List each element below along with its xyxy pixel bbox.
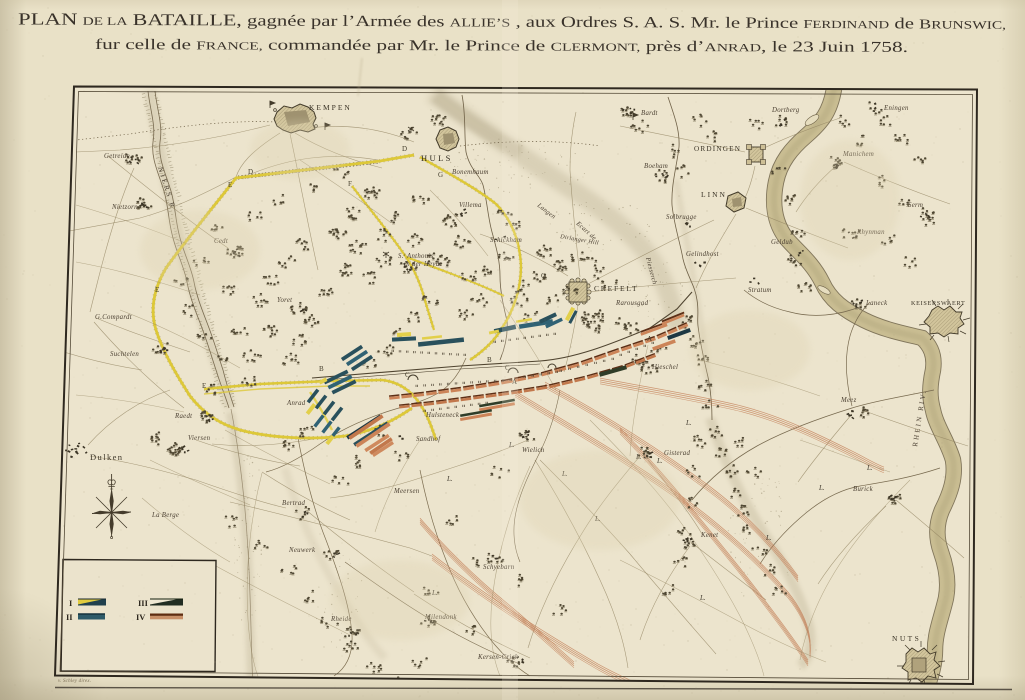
svg-text:KEISERSWAERT: KEISERSWAERT <box>911 300 965 307</box>
svg-text:D: D <box>248 168 253 176</box>
svg-text:L.: L. <box>446 475 453 483</box>
svg-text:Anrad: Anrad <box>286 400 306 407</box>
svg-text:S.ᵗ Anthonis: S.ᵗ Anthonis <box>398 253 434 260</box>
svg-text:E: E <box>228 181 232 189</box>
svg-text:E: E <box>155 286 159 294</box>
svg-text:Getreide: Getreide <box>104 153 130 160</box>
svg-text:Dortberg: Dortberg <box>771 107 800 114</box>
svg-text:Serm: Serm <box>908 202 923 209</box>
svg-text:Rarousgad: Rarousgad <box>615 300 649 307</box>
svg-text:G.Compardt: G.Compardt <box>95 314 133 321</box>
svg-text:Nietzorn: Nietzorn <box>111 204 138 211</box>
svg-text:D: D <box>402 145 407 153</box>
svg-text:L.: L. <box>685 419 692 427</box>
svg-text:Neuwerk: Neuwerk <box>288 547 316 554</box>
svg-text:B: B <box>319 365 324 373</box>
svg-text:LINN: LINN <box>701 190 727 199</box>
svg-text:E: E <box>202 382 206 390</box>
svg-text:Hieschel: Hieschel <box>651 364 678 371</box>
svg-text:G: G <box>541 272 546 280</box>
svg-text:Eningen: Eningen <box>883 105 909 112</box>
svg-text:NUTS: NUTS <box>892 634 921 643</box>
svg-text:Kenet: Kenet <box>700 532 719 539</box>
svg-text:L.: L. <box>818 484 825 492</box>
svg-text:III: III <box>138 598 149 608</box>
svg-text:L.: L. <box>765 534 772 542</box>
svg-text:Yoret: Yoret <box>277 297 293 304</box>
svg-text:Raedt: Raedt <box>174 413 193 420</box>
svg-text:L.: L. <box>656 457 663 465</box>
svg-text:Bonemhaum: Bonemhaum <box>452 169 489 176</box>
svg-text:Burick: Burick <box>853 486 874 493</box>
svg-text:Bertrad: Bertrad <box>282 500 306 507</box>
svg-text:KEMPEN: KEMPEN <box>309 103 352 112</box>
svg-text:Sandhof: Sandhof <box>416 436 441 443</box>
svg-text:Villema: Villema <box>459 202 482 209</box>
svg-text:HULS: HULS <box>421 153 453 163</box>
svg-text:B: B <box>487 356 492 364</box>
svg-text:Boeham: Boeham <box>644 163 668 170</box>
svg-text:Suchtelen: Suchtelen <box>110 351 139 358</box>
svg-text:Geldub: Geldub <box>771 239 793 246</box>
svg-text:Solbrugge: Solbrugge <box>666 214 697 221</box>
svg-text:Bardt: Bardt <box>641 110 659 117</box>
svg-text:La Berge: La Berge <box>151 512 179 519</box>
svg-text:A: A <box>647 335 652 343</box>
svg-text:Gisterad: Gisterad <box>664 450 690 457</box>
svg-text:Hulsteneck: Hulsteneck <box>425 412 460 419</box>
svg-text:v. Schley direx.: v. Schley direx. <box>58 679 91 684</box>
svg-text:IV: IV <box>136 612 146 622</box>
svg-text:Meersen: Meersen <box>393 488 420 495</box>
svg-text:Gelindhost: Gelindhost <box>686 251 720 258</box>
svg-text:Wielich: Wielich <box>522 447 545 454</box>
svg-text:II: II <box>66 612 73 622</box>
svg-text:ORDINGEN: ORDINGEN <box>694 145 741 153</box>
svg-text:F: F <box>348 180 352 188</box>
svg-text:Stratum: Stratum <box>748 287 772 294</box>
svg-text:L.: L. <box>699 594 706 602</box>
svg-text:Laneck: Laneck <box>865 300 888 307</box>
svg-text:C: C <box>405 371 410 379</box>
svg-text:Meez: Meez <box>840 397 857 404</box>
svg-text:G: G <box>438 171 443 179</box>
svg-text:Viersen: Viersen <box>188 435 211 442</box>
svg-text:in der Heyde: in der Heyde <box>404 261 443 268</box>
svg-text:CREFELT: CREFELT <box>594 284 638 293</box>
svg-text:L.: L. <box>866 464 873 472</box>
svg-text:Dulken: Dulken <box>90 452 123 462</box>
